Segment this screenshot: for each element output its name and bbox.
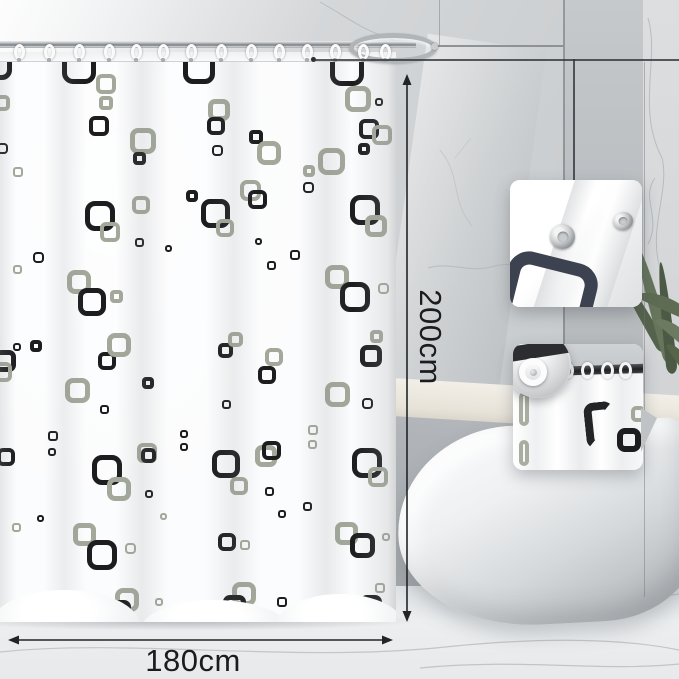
height-dimension-label: 200cm — [412, 289, 448, 385]
curtain-rings — [0, 0, 679, 679]
inset-pattern-strip — [519, 392, 529, 426]
glass-panel-edge — [644, 62, 645, 597]
hem-grommet-dot — [17, 58, 21, 62]
grommet-eyelet — [550, 224, 575, 249]
inset-pattern-corner — [583, 401, 618, 450]
inset-curtain-ring — [581, 362, 594, 379]
hem-grommet-dot — [107, 58, 111, 62]
card-page-curl — [641, 408, 657, 452]
hem-grommet-dot — [134, 58, 138, 62]
width-dimension-label: 180cm — [145, 643, 241, 679]
hem-grommet-dot — [77, 58, 81, 62]
hem-grommet-dot — [249, 58, 253, 62]
magnified-screw — [530, 369, 537, 376]
leader-line-vertical — [573, 59, 575, 180]
hem-grommet-dot — [305, 58, 309, 62]
inset-curtain-ring — [601, 362, 614, 379]
inset-curtain-ring — [619, 362, 632, 379]
grommet-hole — [557, 231, 568, 242]
inset-pattern-strip — [519, 440, 529, 466]
hem-grommet-dot — [189, 58, 193, 62]
hem-grommet-dot — [219, 58, 223, 62]
bathroom-product-photo: 200cm 180cm — [0, 0, 679, 679]
grommet-hole — [618, 216, 629, 226]
hem-grommet-dot — [277, 58, 281, 62]
hem-grommet-dot — [161, 58, 165, 62]
inset-grommet-detail — [510, 180, 642, 307]
inset-pattern-square — [617, 428, 641, 452]
hem-grommet-dot — [47, 58, 51, 62]
inset-rings-detail — [513, 344, 643, 470]
leader-line-horizontal — [313, 59, 679, 61]
